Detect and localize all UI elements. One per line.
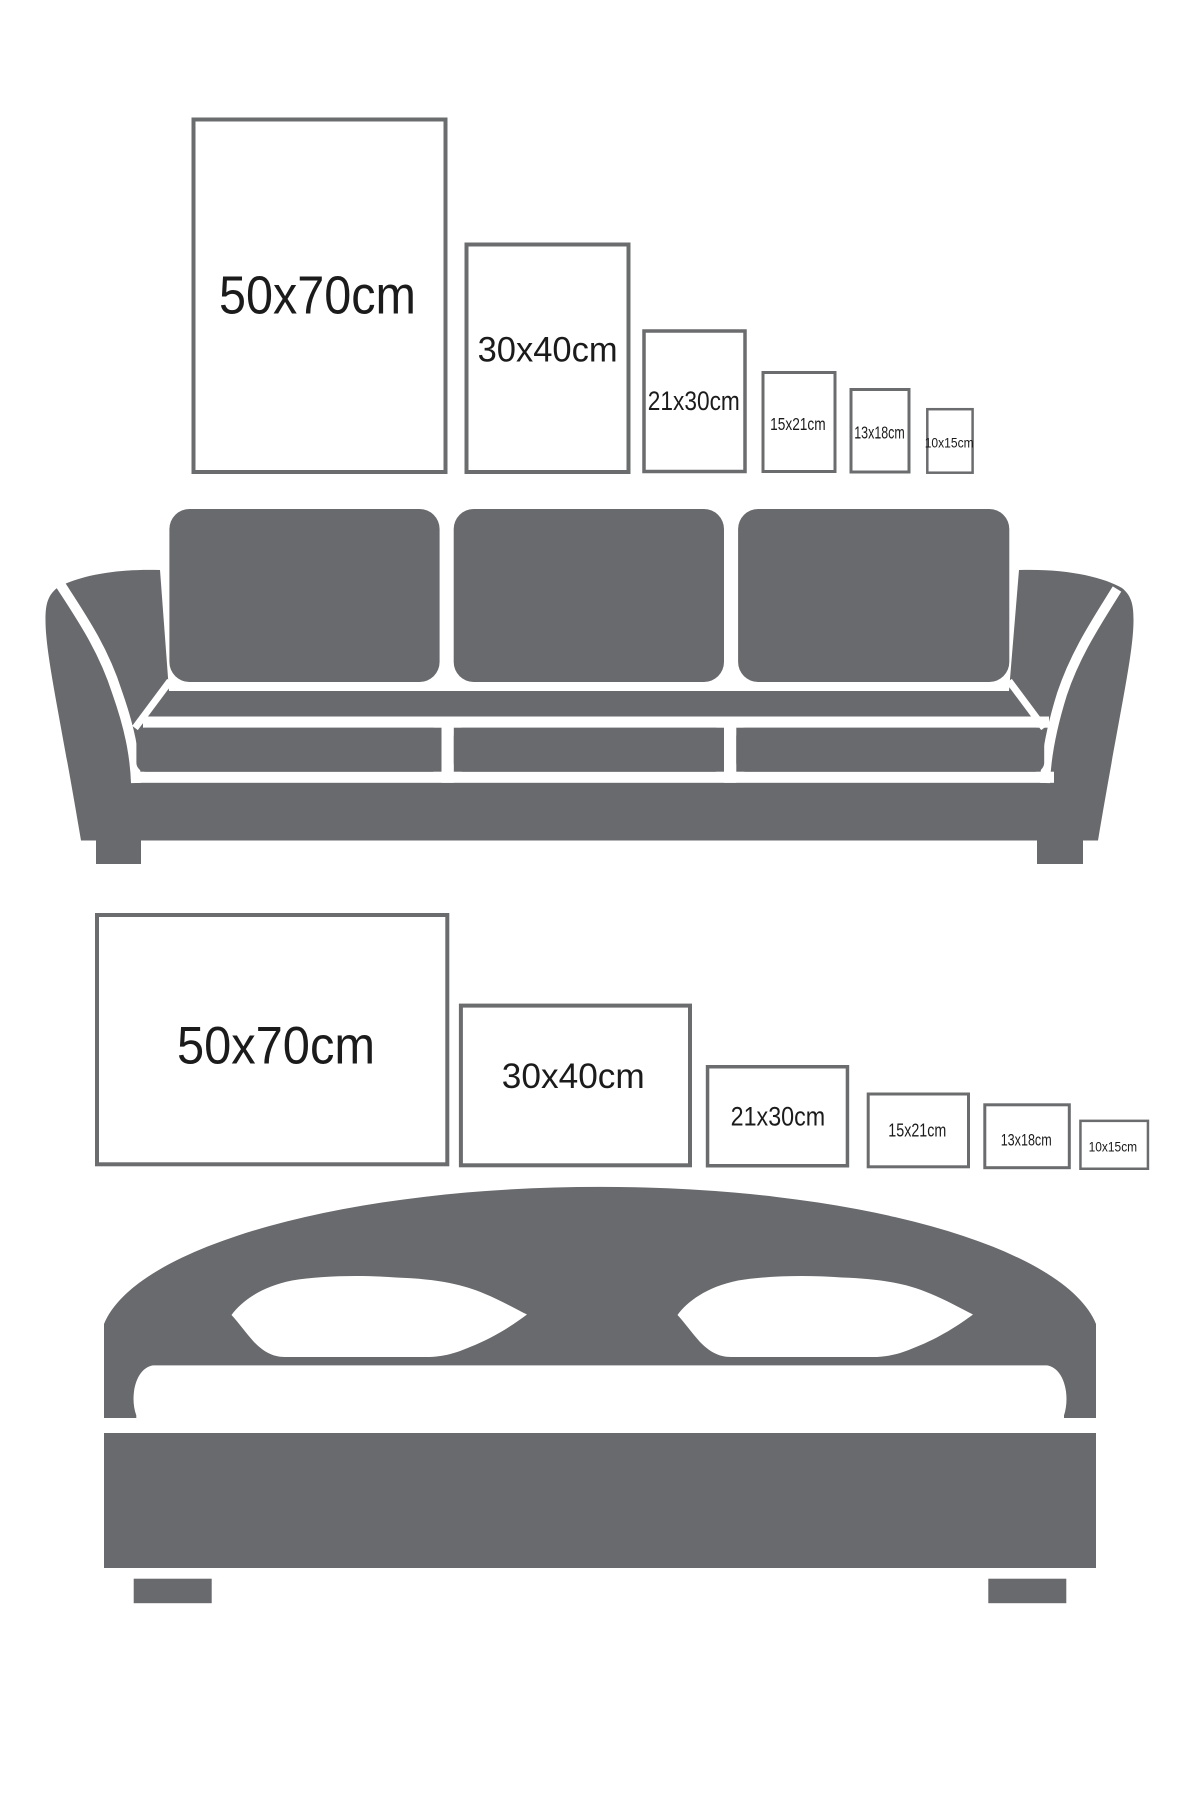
svg-text:13x18cm: 13x18cm	[1001, 1130, 1052, 1149]
svg-text:50x70cm: 50x70cm	[219, 266, 416, 326]
svg-text:30x40cm: 30x40cm	[502, 1057, 645, 1096]
svg-text:15x21cm: 15x21cm	[888, 1121, 946, 1141]
svg-text:50x70cm: 50x70cm	[177, 1016, 375, 1075]
svg-text:21x30cm: 21x30cm	[731, 1101, 826, 1131]
svg-text:13x18cm: 13x18cm	[854, 423, 905, 443]
svg-text:30x40cm: 30x40cm	[478, 331, 618, 370]
svg-text:10x15cm: 10x15cm	[1089, 1139, 1138, 1155]
svg-text:15x21cm: 15x21cm	[770, 414, 826, 434]
svg-text:21x30cm: 21x30cm	[648, 386, 740, 416]
svg-text:10x15cm: 10x15cm	[925, 436, 974, 451]
